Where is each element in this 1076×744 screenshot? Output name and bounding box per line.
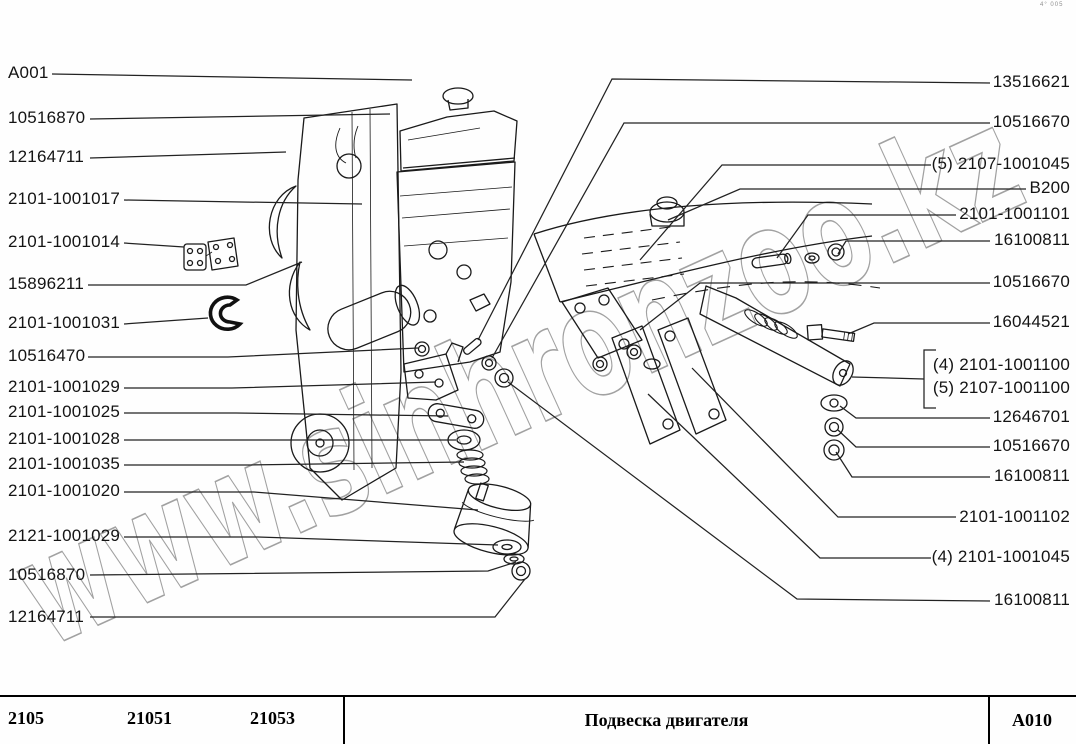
part-number-label: 2101-1001017 <box>8 190 120 208</box>
part-number-label: 16100811 <box>994 231 1070 249</box>
part-number-label: A001 <box>8 64 49 82</box>
part-number-label: 16100811 <box>994 591 1070 609</box>
part-number-label: 2101-1001014 <box>8 233 120 251</box>
page-code: A010 <box>1012 710 1052 731</box>
part-number-label: 2101-1001035 <box>8 455 120 473</box>
part-number-label: 2101-1001028 <box>8 430 120 448</box>
part-number-label: 10516870 <box>8 109 85 127</box>
section-title: Подвеска двигателя <box>585 710 749 731</box>
model-number: 21051 <box>127 708 172 729</box>
parts-catalog-page: www.sinhronzoo.kz <box>0 0 1076 744</box>
part-number-label: 13516621 <box>993 73 1070 91</box>
part-number-label: 2121-1001029 <box>8 527 120 545</box>
part-number-label: (5) 2107-1001100 <box>933 379 1070 397</box>
part-number-label: 10516470 <box>8 347 85 365</box>
rubber-buffer-part <box>210 297 240 329</box>
model-number: 2105 <box>8 708 44 729</box>
part-number-label: 12164711 <box>8 148 84 166</box>
model-numbers-cell: 2105 21051 21053 <box>0 697 345 744</box>
corner-mark: 4° 005 <box>1040 2 1063 9</box>
part-number-label: 2101-1001101 <box>959 205 1070 223</box>
part-number-label: 16044521 <box>993 313 1070 331</box>
page-code-cell: A010 <box>990 697 1076 744</box>
part-number-label: 10516670 <box>993 113 1070 131</box>
part-number-label: 2101-1001020 <box>8 482 120 500</box>
part-number-label: 2101-1001102 <box>959 508 1070 526</box>
part-number-label: 12646701 <box>993 408 1070 426</box>
part-number-label: 2101-1001025 <box>8 403 120 421</box>
part-number-label: 12164711 <box>8 608 84 626</box>
mount-bracket-part <box>184 238 238 270</box>
part-number-label: 2101-1001029 <box>8 378 120 396</box>
part-number-label: B200 <box>1029 179 1070 197</box>
part-number-label: (5) 2107-1001045 <box>932 155 1070 173</box>
footer-table: 2105 21051 21053 Подвеска двигателя A010 <box>0 695 1076 744</box>
part-number-label: 16100811 <box>994 467 1070 485</box>
part-number-label: 15896211 <box>8 275 84 293</box>
section-title-cell: Подвеска двигателя <box>345 697 990 744</box>
part-number-label: 10516670 <box>993 273 1070 291</box>
model-number: 21053 <box>250 708 295 729</box>
part-number-label: (4) 2101-1001100 <box>933 356 1070 374</box>
part-number-label: (4) 2101-1001045 <box>932 548 1070 566</box>
part-number-label: 10516870 <box>8 566 85 584</box>
part-number-label: 10516670 <box>993 437 1070 455</box>
part-number-label: 2101-1001031 <box>8 314 120 332</box>
engine-mount-diagram: www.sinhronzoo.kz <box>0 0 1076 696</box>
